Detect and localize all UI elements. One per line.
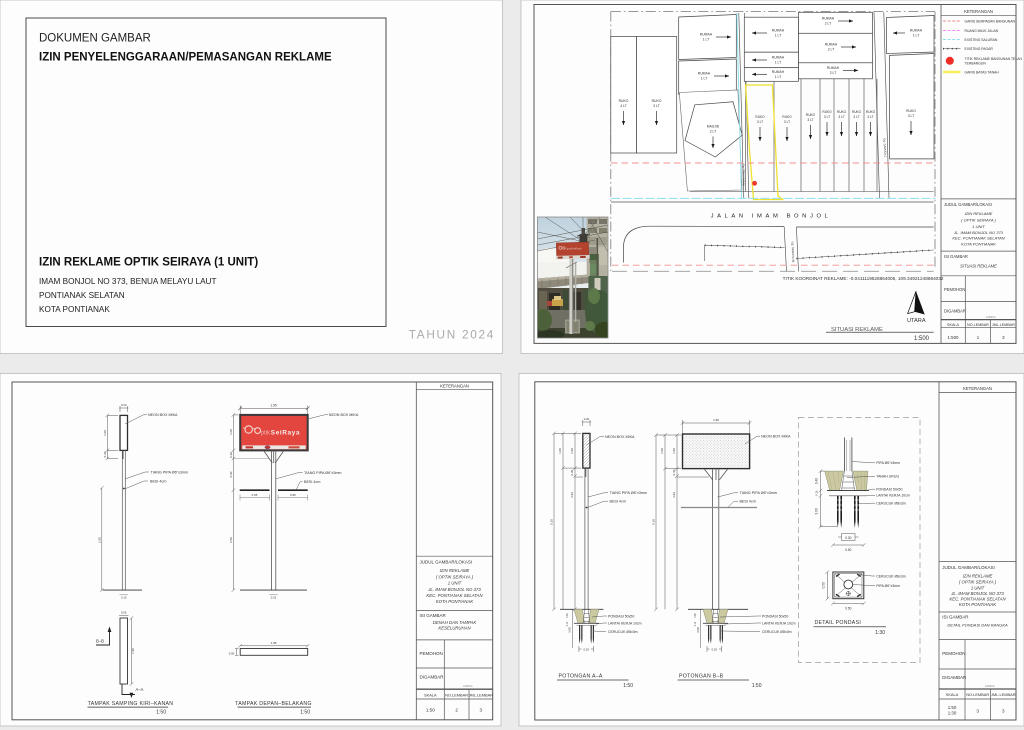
svg-text:1:500: 1:500 [914,336,930,342]
svg-text:0.10: 0.10 [695,621,697,626]
svg-text:0.50: 0.50 [845,606,851,610]
svg-text:3 LT: 3 LT [784,120,790,124]
svg-text:1.00: 1.00 [570,448,574,454]
svg-text:ISI GAMBAR: ISI GAMBAR [420,613,447,618]
svg-text:NO.LEMBAR: NO.LEMBAR [966,692,989,697]
svg-text:ANDIKA: ANDIKA [986,315,996,319]
svg-text:1:50: 1:50 [300,710,310,716]
svg-text:ANDIKA: ANDIKA [985,684,995,688]
svg-text:0.95: 0.95 [252,493,258,497]
svg-text:DIGAMBAR: DIGAMBAR [944,309,966,314]
svg-text:RUMAH: RUMAH [772,70,785,74]
svg-text:CERUCUK Ø8x3m: CERUCUK Ø8x3m [876,574,906,578]
svg-text:PIPA Ø6"x3mm: PIPA Ø6"x3mm [876,584,900,588]
svg-text:1:50: 1:50 [623,683,633,689]
svg-text:0.50: 0.50 [845,548,851,552]
svg-text:NEON BOX MIKA: NEON BOX MIKA [761,435,791,439]
svg-text:3.00: 3.00 [696,627,700,633]
svg-text:2.50: 2.50 [97,537,101,543]
svg-text:DIGAMBAR: DIGAMBAR [942,675,967,680]
svg-text:0.30: 0.30 [845,536,851,540]
svg-text:NO.LEMBAR: NO.LEMBAR [445,692,468,697]
svg-text:2: 2 [455,708,458,713]
svg-text:JALAN IMAM BONJOL: JALAN IMAM BONJOL [711,214,832,220]
svg-text:0.20: 0.20 [584,417,590,421]
svg-text:1:30: 1:30 [875,630,885,636]
svg-text:IZIN PENYELENGGARAAN/PEMASANGA: IZIN PENYELENGGARAAN/PEMASANGAN REKLAME [39,52,332,64]
svg-text:BESI 4cm: BESI 4cm [610,500,626,504]
svg-text:SKALA: SKALA [424,692,437,697]
svg-text:1 LT: 1 LT [775,75,782,79]
svg-text:3.93: 3.93 [672,492,676,498]
svg-text:GARIS SEMPADAN BANGUNAN: GARIS SEMPADAN BANGUNAN [965,19,1016,23]
svg-text:TIANG PIPA Ø6"x3mm: TIANG PIPA Ø6"x3mm [610,491,648,495]
svg-text:0.10: 0.10 [815,490,819,496]
svg-text:2 LT: 2 LT [710,130,717,134]
svg-text:JML.LEMBAR: JML.LEMBAR [992,323,1015,327]
svg-text:GARIS BATAS TANAH: GARIS BATAS TANAH [965,70,1000,74]
svg-text:PONDASI 50x50: PONDASI 50x50 [762,614,788,618]
svg-text:OptikSeiRaya: OptikSeiRaya [566,246,583,250]
svg-text:ANDIKA: ANDIKA [463,684,473,688]
svg-text:IZIN REKLAME: IZIN REKLAME [440,568,470,573]
svg-text:3 LT: 3 LT [757,120,763,124]
svg-text:4 LT: 4 LT [620,104,627,108]
svg-text:TAMPAK DEPAN–BELAKANG: TAMPAK DEPAN–BELAKANG [235,701,312,707]
svg-text:0.40: 0.40 [567,613,569,618]
svg-text:0.20: 0.20 [712,647,718,651]
svg-text:( OPTIK SEIRAYA ): ( OPTIK SEIRAYA ) [959,579,997,584]
svg-text:1.95: 1.95 [713,418,719,422]
svg-text:KEC. PONTIANAK SELATAN: KEC. PONTIANAK SELATAN [952,236,1004,241]
svg-text:3 LT: 3 LT [653,104,660,108]
svg-text:3 LT: 3 LT [867,115,873,119]
svg-text:( OPTIK SEIRAYA ): ( OPTIK SEIRAYA ) [961,218,996,223]
svg-text:NEON BOX MIKA: NEON BOX MIKA [605,435,635,439]
svg-text:JML.LEMBAR: JML.LEMBAR [991,692,1016,697]
svg-text:1:50: 1:50 [948,705,957,710]
svg-text:DETAIL PONDASI DAN RANGKA: DETAIL PONDASI DAN RANGKA [947,623,1008,628]
svg-text:3: 3 [1002,709,1005,714]
svg-text:0.50: 0.50 [821,582,825,588]
svg-text:0.05: 0.05 [229,652,235,656]
svg-text:1 LT: 1 LT [701,77,708,81]
svg-text:Gg. SEIRAYA 96: Gg. SEIRAYA 96 [791,242,796,263]
svg-text:1 LT: 1 LT [703,38,710,42]
svg-text:2 LT: 2 LT [828,48,835,52]
svg-text:EXISTING PAGAR: EXISTING PAGAR [965,47,994,51]
svg-text:2 LT: 2 LT [830,71,837,75]
svg-text:RUKO: RUKO [782,115,792,119]
svg-text:1.00: 1.00 [660,448,664,454]
svg-text:KETERANGAN: KETERANGAN [440,383,469,388]
svg-text:SeiRaya: SeiRaya [271,430,300,437]
svg-text:KOTA PONTIANAK: KOTA PONTIANAK [436,599,474,604]
svg-text:TANAH URUG: TANAH URUG [876,475,899,479]
svg-text:IMAM BONJOL NO 373, BENUA MELA: IMAM BONJOL NO 373, BENUA MELAYU LAUT [39,277,216,286]
svg-text:CERUCUK Ø8x3m: CERUCUK Ø8x3m [608,630,638,634]
svg-text:5.10: 5.10 [549,519,553,525]
svg-text:KETERANGAN: KETERANGAN [963,386,992,391]
svg-text:1.95: 1.95 [271,641,277,645]
svg-text:0.20: 0.20 [583,647,589,651]
svg-text:2 LT: 2 LT [825,22,832,26]
svg-text:1:50: 1:50 [752,683,762,689]
svg-text:1.95: 1.95 [270,404,276,408]
svg-text:CERUCUK Ø8x3m: CERUCUK Ø8x3m [762,630,792,634]
svg-text:DENAH DAN TAMPAK: DENAH DAN TAMPAK [433,620,478,625]
svg-text:RUMAH: RUMAH [698,72,711,76]
svg-text:0.30: 0.30 [103,451,107,457]
svg-text:0.05: 0.05 [121,611,127,615]
svg-text:RUKO: RUKO [619,99,629,103]
svg-text:KESELURUHAN: KESELURUHAN [438,626,471,631]
svg-text:3 LT: 3 LT [824,115,830,119]
svg-text:RUKO: RUKO [837,110,847,114]
svg-text:SKALA: SKALA [947,323,959,327]
svg-text:NEON BOX MIKA: NEON BOX MIKA [329,413,359,417]
svg-text:3: 3 [976,709,979,714]
svg-text:TIANG PIPA Ø6"x3mm: TIANG PIPA Ø6"x3mm [304,471,342,475]
svg-text:DIGAMBAR: DIGAMBAR [420,675,445,680]
svg-text:1 LT: 1 LT [775,61,782,65]
svg-text:3.00: 3.00 [815,508,819,514]
svg-text:1:500: 1:500 [948,335,960,340]
svg-text:JL. IMAM BONJOL NO 373: JL. IMAM BONJOL NO 373 [950,591,1004,596]
svg-text:TITIK REKLAME BANGUNAN TELAH: TITIK REKLAME BANGUNAN TELAH [965,57,1023,61]
svg-text:1 UNIT: 1 UNIT [972,224,985,229]
svg-text:KEC. PONTIANAK SELATAN: KEC. PONTIANAK SELATAN [426,593,483,598]
svg-text:RUMAH: RUMAH [910,29,923,33]
svg-text:0.95: 0.95 [290,493,296,497]
svg-text:0.90: 0.90 [229,471,233,477]
svg-text:JUDUL GAMBAR/LOKASI: JUDUL GAMBAR/LOKASI [944,202,992,207]
svg-text:3 LT: 3 LT [807,118,813,122]
svg-text:TAMPAK SAMPING KIRI–KANAN: TAMPAK SAMPING KIRI–KANAN [88,701,174,707]
svg-text:0.15: 0.15 [121,596,127,600]
svg-text:LANTAI KERJA 10cm: LANTAI KERJA 10cm [608,621,642,625]
svg-text:1.95: 1.95 [131,648,135,654]
svg-text:ISI GAMBAR: ISI GAMBAR [944,254,968,259]
svg-text:RUKO: RUKO [822,110,832,114]
svg-text:ISI GAMBAR: ISI GAMBAR [942,614,969,619]
svg-text:CERUCUK Ø8x3m: CERUCUK Ø8x3m [876,502,906,506]
svg-text:PEMOHON: PEMOHON [942,651,965,656]
svg-text:1.00: 1.00 [229,429,233,435]
svg-text:RUMAH: RUMAH [772,56,785,60]
svg-text:LANTAI KERJA 10cm: LANTAI KERJA 10cm [762,621,796,625]
svg-text:3: 3 [480,708,483,713]
svg-text:PEMOHON: PEMOHON [420,651,443,656]
svg-text:RUMAH: RUMAH [827,66,840,70]
svg-text:B–B: B–B [96,639,104,644]
svg-text:A–A: A–A [136,687,144,692]
svg-text:RUMAH: RUMAH [772,29,785,33]
svg-text:BESI 4cm: BESI 4cm [304,480,320,484]
svg-text:RUKO: RUKO [755,115,765,119]
svg-text:JML.LEMBAR: JML.LEMBAR [469,692,494,697]
svg-text:BESI 4cm: BESI 4cm [150,479,166,483]
svg-text:1:50: 1:50 [426,708,435,713]
svg-text:1:50: 1:50 [156,710,166,716]
svg-text:3 LT: 3 LT [908,114,915,118]
svg-text:JL. IMAM BONJOL NO 373: JL. IMAM BONJOL NO 373 [427,587,481,592]
svg-text:0.20: 0.20 [121,403,127,407]
svg-text:1.00: 1.00 [672,448,676,454]
svg-text:0.15: 0.15 [271,596,277,600]
svg-text:TIANG PIPA Ø6"x3mm: TIANG PIPA Ø6"x3mm [740,491,778,495]
svg-text:2.50: 2.50 [229,537,233,543]
svg-text:0.10: 0.10 [567,621,569,626]
svg-text:0.30: 0.30 [229,452,233,458]
svg-text:KEC. PONTIANAK SELATAN: KEC. PONTIANAK SELATAN [949,596,1006,601]
svg-text:RUKO: RUKO [906,109,916,113]
svg-text:1 LT: 1 LT [913,34,920,38]
svg-text:TITIK KOORDINAT REKLAME: -0.04: TITIK KOORDINAT REKLAME: -0.041111952886… [783,276,944,281]
svg-text:1 UNIT: 1 UNIT [971,585,985,590]
svg-text:RUKO: RUKO [852,110,862,114]
svg-text:JUDUL GAMBAR/LOKASI: JUDUL GAMBAR/LOKASI [420,560,473,565]
svg-text:EXISTING SALURAN: EXISTING SALURAN [965,38,998,42]
svg-text:LANTAI KERJA 10cm: LANTAI KERJA 10cm [876,494,910,498]
svg-text:TIANG PIPA Ø6"x3mm: TIANG PIPA Ø6"x3mm [151,470,189,474]
svg-text:1.00: 1.00 [103,430,107,436]
svg-text:0.30: 0.30 [672,469,676,475]
svg-text:BESI 4cm: BESI 4cm [740,500,756,504]
svg-text:1 UNIT: 1 UNIT [448,581,462,586]
svg-text:1:30: 1:30 [948,711,957,716]
svg-text:SITUASI REKLAME: SITUASI REKLAME [960,263,997,268]
svg-text:KETERANGAN: KETERANGAN [964,9,993,14]
svg-text:MASJID: MASJID [707,125,720,129]
svg-text:PONTIANAK SELATAN: PONTIANAK SELATAN [39,291,125,300]
svg-text:TERBANGUN: TERBANGUN [965,61,987,65]
svg-text:Gg. TANIA INDAH: Gg. TANIA INDAH [742,164,746,187]
svg-text:POTONGAN B–B: POTONGAN B–B [679,674,724,680]
svg-text:SKALA: SKALA [946,692,959,697]
svg-text:KOTA PONTIANAK: KOTA PONTIANAK [961,241,996,246]
svg-text:RUMAH: RUMAH [825,43,838,47]
svg-text:RUMAH: RUMAH [822,17,835,21]
svg-text:ptik: ptik [261,431,271,437]
svg-text:PONDASI 50x50: PONDASI 50x50 [876,488,902,492]
svg-text:3 LT: 3 LT [853,115,859,119]
svg-text:DOKUMEN GAMBAR: DOKUMEN GAMBAR [39,33,151,45]
svg-text:3.00: 3.00 [568,627,572,633]
svg-text:RUKO: RUKO [866,110,876,114]
svg-text:RUKO: RUKO [652,99,662,103]
svg-text:IZIN REKLAME OPTIK SEIRAYA (1: IZIN REKLAME OPTIK SEIRAYA (1 UNIT) [39,257,258,269]
svg-text:3 LT: 3 LT [838,115,844,119]
svg-text:RUMAH: RUMAH [700,33,713,37]
svg-text:0.40: 0.40 [695,613,697,618]
svg-text:1 LT: 1 LT [775,34,782,38]
svg-text:PEMOHON: PEMOHON [944,287,965,292]
svg-text:RUKO: RUKO [806,113,816,117]
svg-text:DETAIL PONDASI: DETAIL PONDASI [815,620,862,626]
svg-text:PONDASI 50x50: PONDASI 50x50 [608,614,634,618]
svg-text:( OPTIK SEIRAYA ): ( OPTIK SEIRAYA ) [436,574,474,579]
svg-text:PIPA Ø6"x3mm: PIPA Ø6"x3mm [876,461,900,465]
svg-text:KOTA PONTIANAK: KOTA PONTIANAK [39,305,110,314]
svg-text:3.93: 3.93 [570,492,574,498]
svg-text:1.00: 1.00 [558,448,562,454]
svg-text:KOTA PONTIANAK: KOTA PONTIANAK [959,602,997,607]
svg-text:0.40: 0.40 [815,478,819,484]
svg-text:NEON BOX MIKA: NEON BOX MIKA [148,413,178,417]
svg-text:5.10: 5.10 [651,519,655,525]
svg-text:JUDUL GAMBAR/LOKASI: JUDUL GAMBAR/LOKASI [942,565,995,570]
svg-text:UTARA: UTARA [907,318,926,324]
svg-text:IZIN REKLAME: IZIN REKLAME [963,573,993,578]
svg-text:POTONGAN A–A: POTONGAN A–A [559,674,603,680]
svg-text:IZIN REKLAME: IZIN REKLAME [965,211,993,216]
svg-text:JL. IMAM BONJOL NO 373: JL. IMAM BONJOL NO 373 [953,230,1004,235]
svg-text:0.30: 0.30 [570,469,574,475]
svg-text:TAHUN 2024: TAHUN 2024 [409,328,495,342]
svg-text:RUANG MILIK JALAN: RUANG MILIK JALAN [965,29,999,33]
svg-text:NO.LEMBAR: NO.LEMBAR [967,323,989,327]
